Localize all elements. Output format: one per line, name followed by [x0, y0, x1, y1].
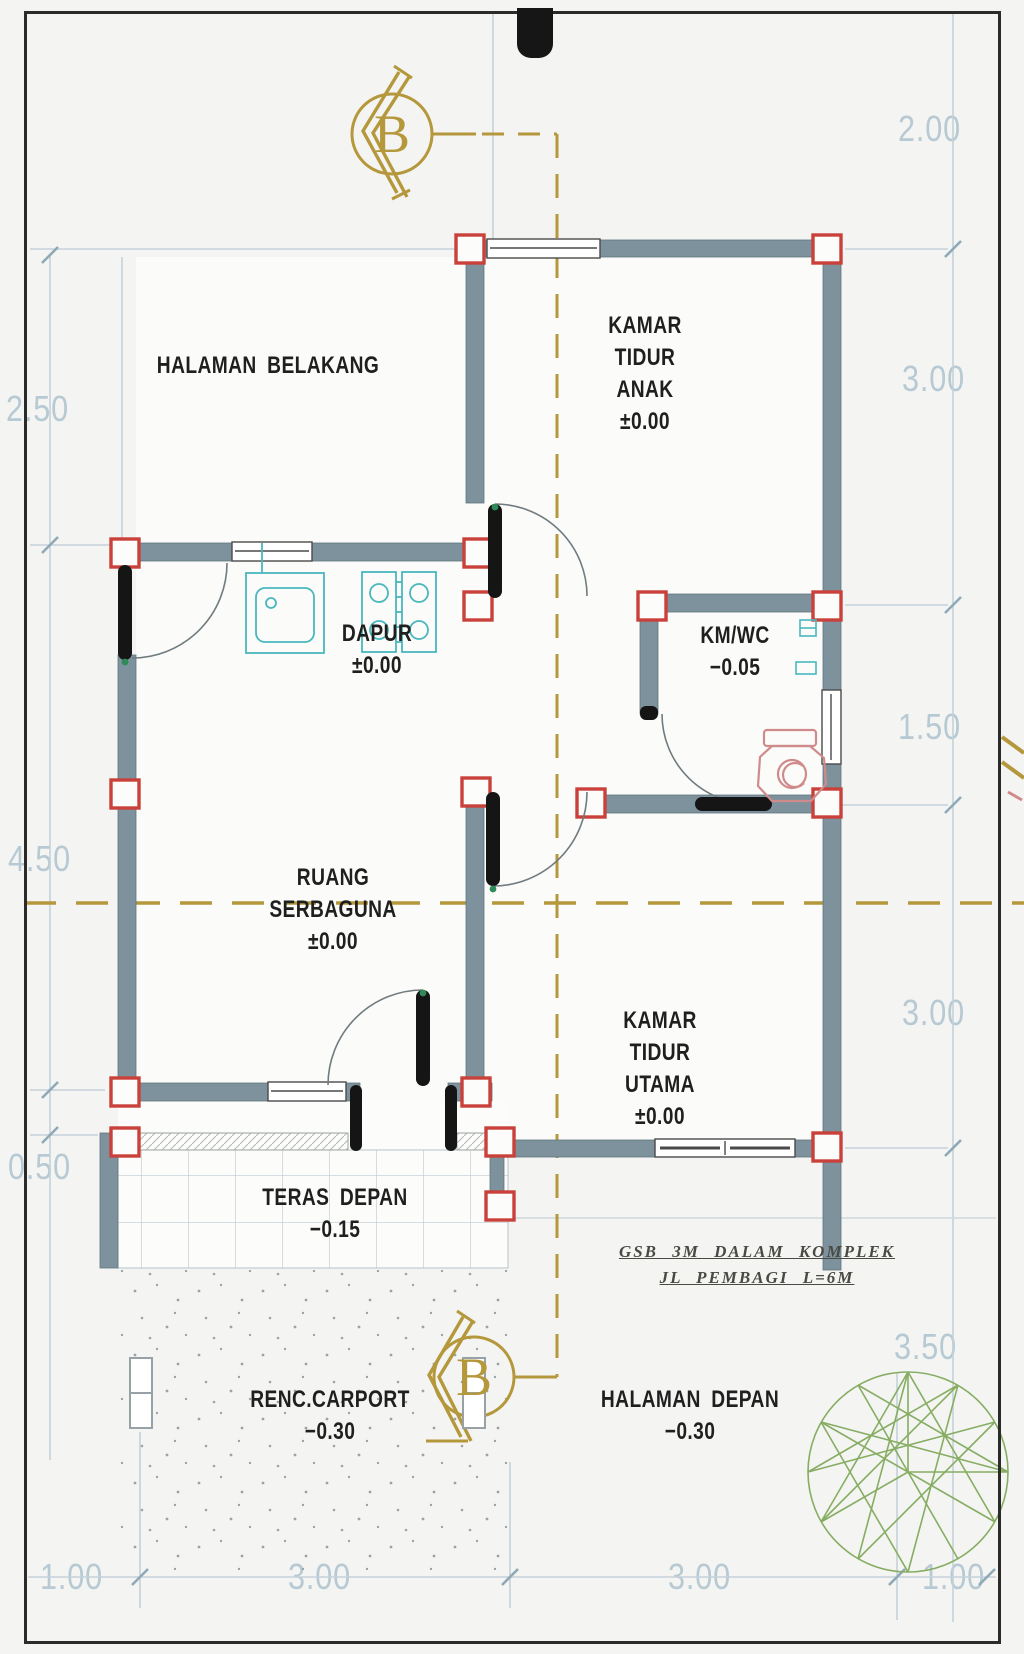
column-marker	[456, 235, 484, 263]
column-marker	[813, 1133, 841, 1161]
door-leaf	[118, 565, 132, 660]
wall-segment	[118, 655, 136, 1085]
setback-note-line-2: JL PEMBAGI L=6M	[592, 1268, 922, 1288]
door-jamb	[640, 706, 658, 720]
column-marker	[464, 592, 492, 620]
column-marker	[813, 235, 841, 263]
window	[487, 239, 600, 258]
tree	[808, 1372, 1008, 1572]
column-marker	[638, 592, 666, 620]
setback-note-line-1: GSB 3M DALAM KOMPLEK	[592, 1242, 922, 1262]
room-label-kamar-tidur-utama: KAMARTIDUR UTAMA±0.00	[580, 1005, 740, 1133]
wall-segment	[466, 257, 484, 503]
room-label-dapur: DAPUR±0.00	[313, 618, 441, 682]
window-double	[655, 1139, 795, 1157]
floor-plan-drawing	[0, 0, 1024, 1654]
column-marker	[486, 1192, 514, 1220]
section-marker-letter-bottom: B	[444, 1348, 504, 1408]
column-marker	[111, 539, 139, 567]
floor-plan-sheet: HALAMAN BELAKANG KAMARTIDUR ANAK±0.00 DA…	[0, 0, 1024, 1654]
column-marker	[577, 789, 605, 817]
room-label-halaman-depan: HALAMAN DEPAN−0.30	[598, 1384, 782, 1448]
wall-segment	[466, 780, 484, 1085]
door-jamb	[350, 1085, 362, 1151]
column-marker	[464, 539, 492, 567]
section-arrow-right-edge	[1002, 737, 1024, 800]
column-marker	[111, 780, 139, 808]
room-label-teras-depan: TERAS DEPAN−0.15	[255, 1182, 415, 1246]
column-marker	[462, 778, 490, 806]
window	[232, 542, 312, 561]
room-label-halaman-belakang: HALAMAN BELAKANG	[132, 350, 404, 382]
wall-segment	[500, 1140, 655, 1157]
room-label-renc-carport: RENC.CARPORT−0.30	[250, 1384, 410, 1448]
column-marker	[813, 592, 841, 620]
door-jamb	[445, 1085, 457, 1151]
window-bathroom	[822, 690, 841, 764]
column-marker	[111, 1078, 139, 1106]
door-leaf	[488, 504, 502, 598]
wall-segment	[640, 594, 841, 612]
door-leaf	[416, 990, 430, 1086]
section-marker-letter-top: B	[362, 105, 422, 165]
room-label-km-wc: KM/WC−0.05	[671, 620, 799, 684]
window	[268, 1082, 346, 1101]
tree-branches	[808, 1372, 1008, 1572]
column-marker	[462, 1078, 490, 1106]
door-leaf	[486, 792, 500, 886]
binder-clip-tab	[517, 8, 553, 58]
column-marker	[111, 1128, 139, 1156]
wall-segment	[640, 612, 658, 714]
door-leaf	[695, 797, 772, 811]
room-label-kamar-tidur-anak: KAMARTIDUR ANAK±0.00	[565, 310, 725, 438]
column-marker	[486, 1128, 514, 1156]
room-label-ruang-serbaguna: RUANGSERBAGUNA ±0.00	[253, 862, 413, 958]
